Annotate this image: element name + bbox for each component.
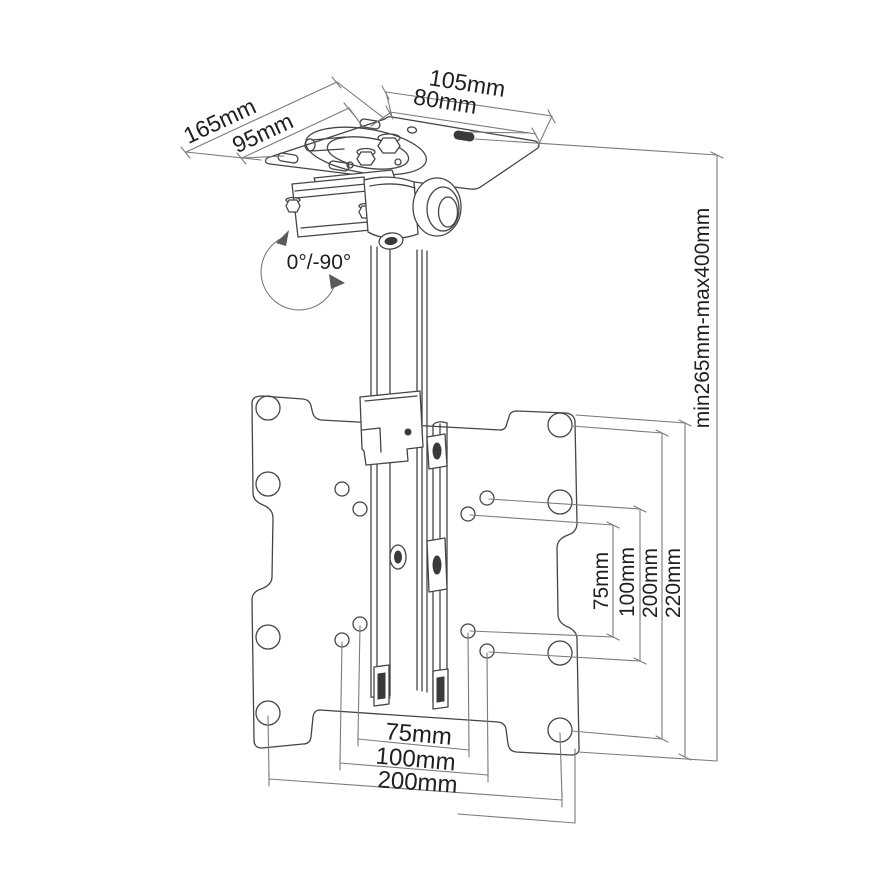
hinge-drawing bbox=[286, 170, 461, 251]
dim-label-vesa-horizontal-200: 200mm bbox=[377, 766, 459, 799]
mount-dimension-drawing: 105mm 80mm 165mm 95mm 0°/-90° min265mm-m… bbox=[0, 0, 884, 884]
dim-label-height-range: min265mm-max400mm bbox=[691, 208, 714, 429]
dim-label-vesa-vertical-200: 200mm bbox=[639, 548, 662, 618]
diagram-canvas: 105mm 80mm 165mm 95mm 0°/-90° min265mm-m… bbox=[0, 0, 884, 884]
vesa-plate-drawing bbox=[252, 396, 579, 755]
dim-label-vesa-vertical-100: 100mm bbox=[616, 547, 639, 617]
dim-label-vesa-vertical-75: 75mm bbox=[590, 552, 613, 610]
dim-label-tilt-angle: 0°/-90° bbox=[287, 251, 352, 274]
dim-label-vesa-vertical-220: 220mm bbox=[662, 548, 685, 618]
